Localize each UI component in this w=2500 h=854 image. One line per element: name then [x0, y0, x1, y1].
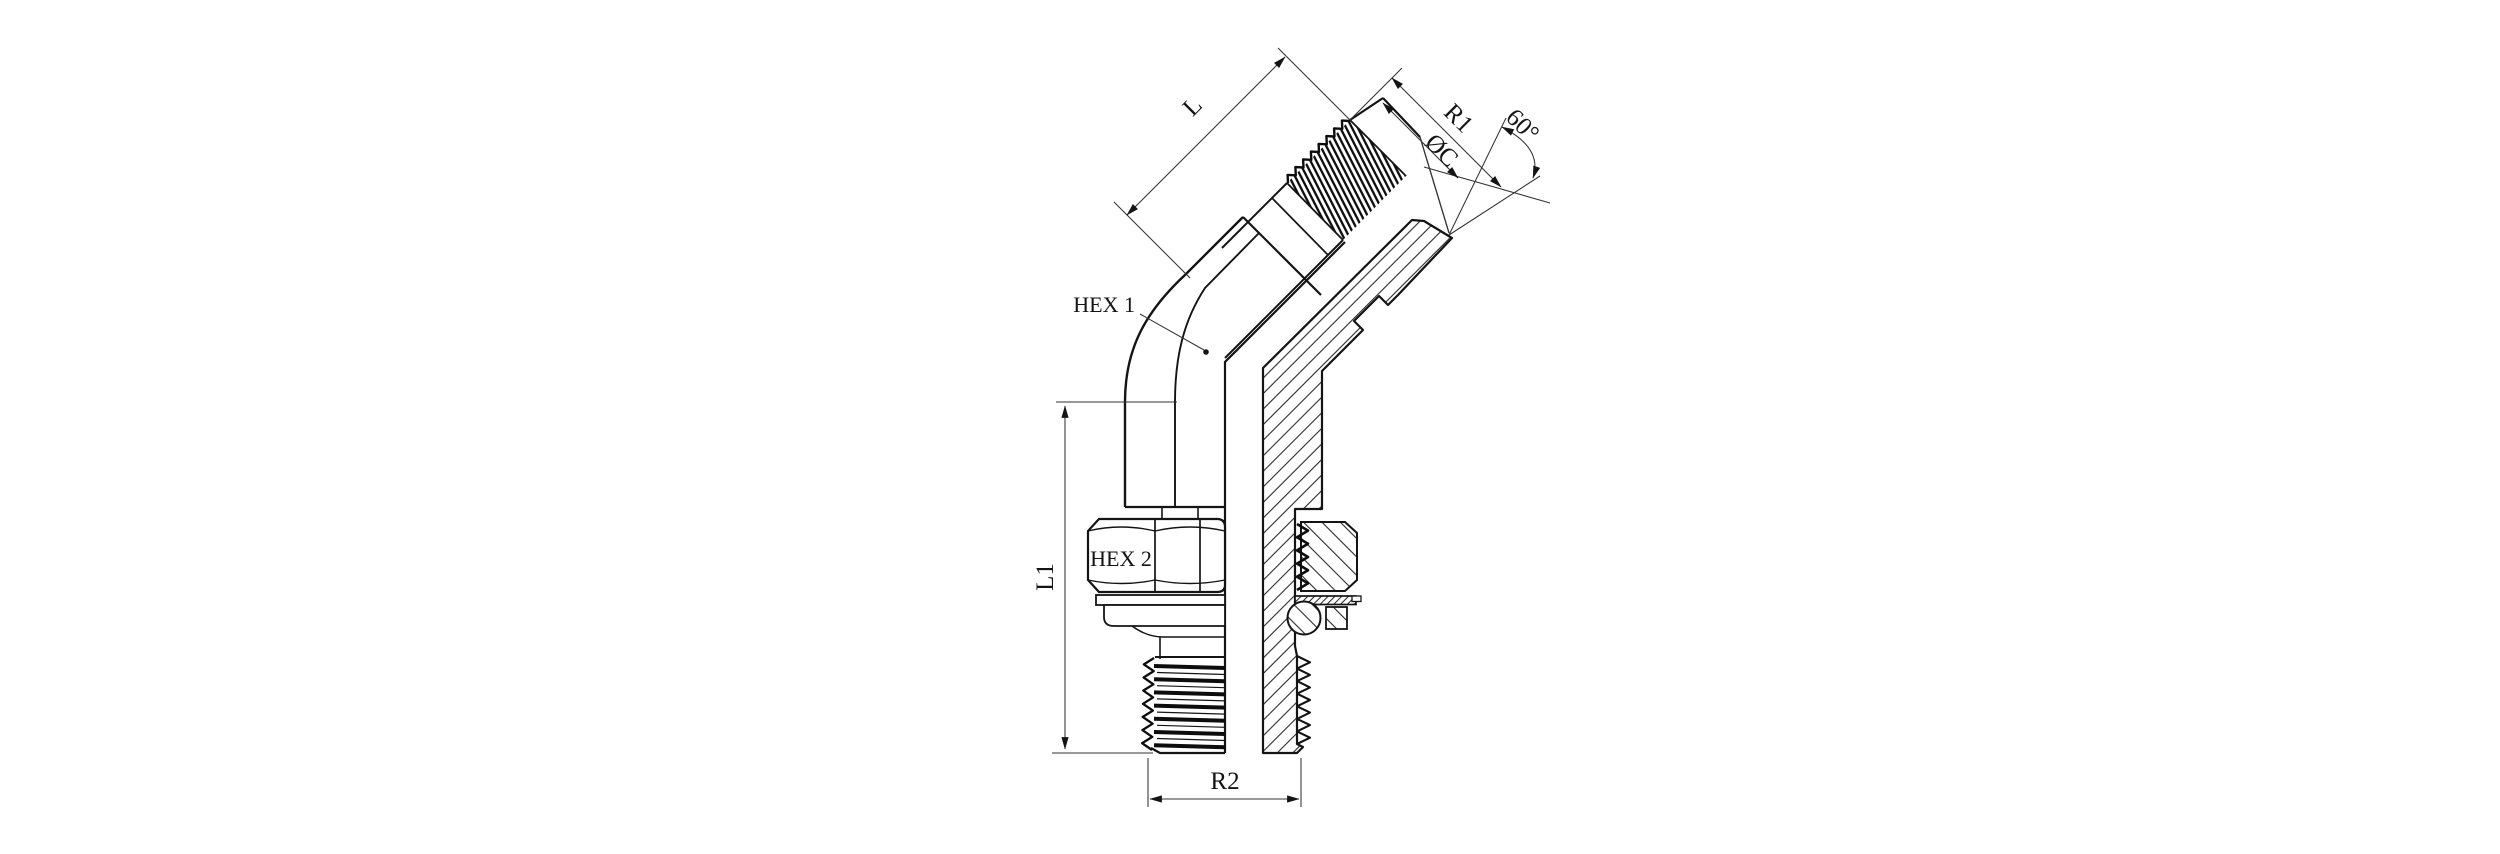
stud-thread-root	[1157, 699, 1225, 701]
dim-label-R2: R2	[1210, 768, 1239, 795]
callout-hex1: HEX 1	[1073, 292, 1135, 317]
external-body-left	[1088, 507, 1225, 753]
body-section-hatched	[1263, 220, 1452, 753]
dim-line-R1	[1392, 78, 1501, 187]
o-ring-section	[1288, 602, 1321, 635]
port-thread-profile-zigzag	[1297, 656, 1310, 744]
washer-external-bottom	[1104, 605, 1225, 626]
hex1-start-boundary	[1243, 217, 1321, 295]
stud-thread-root	[1157, 686, 1225, 688]
stud-thread-root	[1157, 712, 1225, 714]
drawing-page: L R1 ØC 60° L1 R2 HEX 1 HEX 2	[0, 0, 2500, 854]
stud-thread-crest	[1154, 666, 1225, 668]
hex1-leader-line	[1140, 314, 1204, 350]
stud-thread-lines	[1154, 666, 1225, 747]
washer-external-top	[1096, 595, 1225, 605]
ext-L-tip	[1278, 48, 1350, 120]
hex1-leader-dot	[1203, 349, 1209, 355]
stud-thread-crest	[1154, 706, 1225, 708]
ext-R1-near	[1350, 68, 1402, 120]
stud-thread-crest	[1154, 732, 1225, 734]
section-cut-body	[1225, 220, 1452, 753]
dim-label-60deg: 60°	[1500, 104, 1544, 148]
technical-drawing-45deg-elbow-fitting: L R1 ØC 60° L1 R2 HEX 1 HEX 2	[0, 0, 2500, 854]
stud-thread-crest	[1154, 719, 1225, 721]
dim-line-L	[1127, 57, 1285, 215]
callout-hex2: HEX 2	[1090, 546, 1152, 571]
stud-thread-root	[1157, 673, 1225, 675]
stud-thread-crest	[1154, 745, 1225, 747]
stud-thread-root	[1157, 739, 1225, 741]
male-thread-band	[1287, 120, 1406, 240]
dim-label-L: L	[1178, 92, 1208, 122]
retaining-ring-section	[1326, 607, 1347, 629]
locknut-section-hatched	[1301, 522, 1357, 591]
ext-L-bend	[1114, 202, 1190, 278]
nose-end-face	[1383, 98, 1420, 137]
stud-thread-root	[1157, 725, 1225, 727]
dim-label-L1: L1	[1032, 563, 1059, 591]
elbow-middle-arc	[1175, 233, 1259, 507]
nose-chamfer-top	[1350, 98, 1383, 120]
washer-section-step	[1352, 596, 1361, 602]
seal-lip-line	[1132, 626, 1225, 637]
stud-thread-crest	[1154, 679, 1225, 681]
cone-angle-line-1	[1449, 176, 1540, 235]
stud-thread-serration	[1142, 658, 1154, 750]
dim-label-R1: R1	[1438, 99, 1478, 139]
stud-thread-crest	[1154, 692, 1225, 694]
